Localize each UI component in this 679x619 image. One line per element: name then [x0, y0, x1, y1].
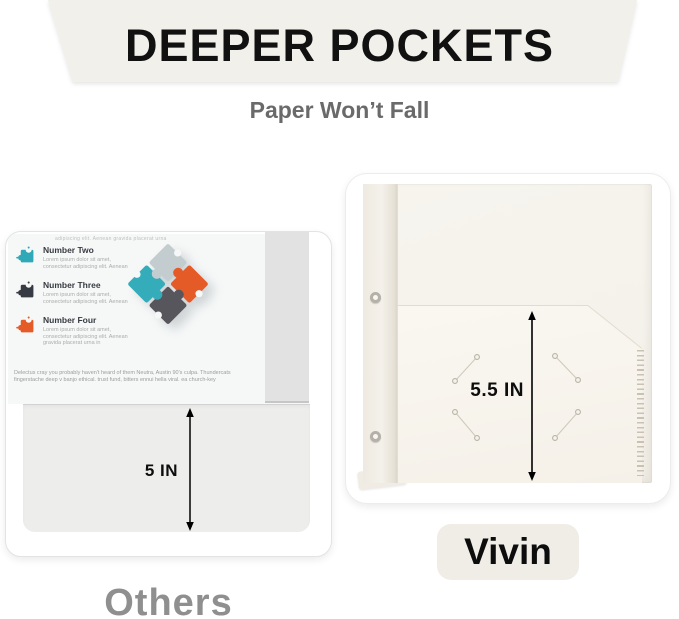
vivin-brand-label: Vivin — [464, 531, 552, 572]
grommet-icon — [370, 431, 381, 442]
crease-mark — [552, 408, 582, 442]
puzzle-piece-icon — [16, 245, 35, 264]
crease-mark — [552, 352, 582, 384]
product-comparison-graphic: DEEPER POCKETS Paper Won’t Fall adipisci… — [0, 0, 679, 619]
pocket-depth-label: 5.5 IN — [438, 380, 524, 402]
page-title: DEEPER POCKETS — [0, 20, 679, 72]
pocket-edge-line — [398, 305, 588, 306]
welded-serrated-edge — [637, 350, 644, 476]
puzzle-graphic — [118, 234, 218, 334]
pocket-depth-label: 5 IN — [94, 461, 178, 481]
vivin-folder-card: 5.5 IN — [345, 173, 671, 504]
measurement-arrow — [527, 311, 537, 481]
vivin-brand-badge: Vivin — [437, 524, 579, 580]
grommet-icon — [370, 292, 381, 303]
others-folder-card: adipiscing elit. Aenean gravida placerat… — [5, 231, 332, 557]
document-paragraph: Delectus cray you probably haven't heard… — [14, 370, 238, 385]
puzzle-piece-icon — [16, 315, 35, 334]
page-subtitle: Paper Won’t Fall — [0, 97, 679, 124]
measurement-arrow — [185, 408, 195, 531]
others-brand-label: Others — [0, 582, 337, 619]
document-gray-edge — [265, 232, 309, 403]
puzzle-piece-icon — [16, 280, 35, 299]
crease-mark — [452, 408, 480, 442]
